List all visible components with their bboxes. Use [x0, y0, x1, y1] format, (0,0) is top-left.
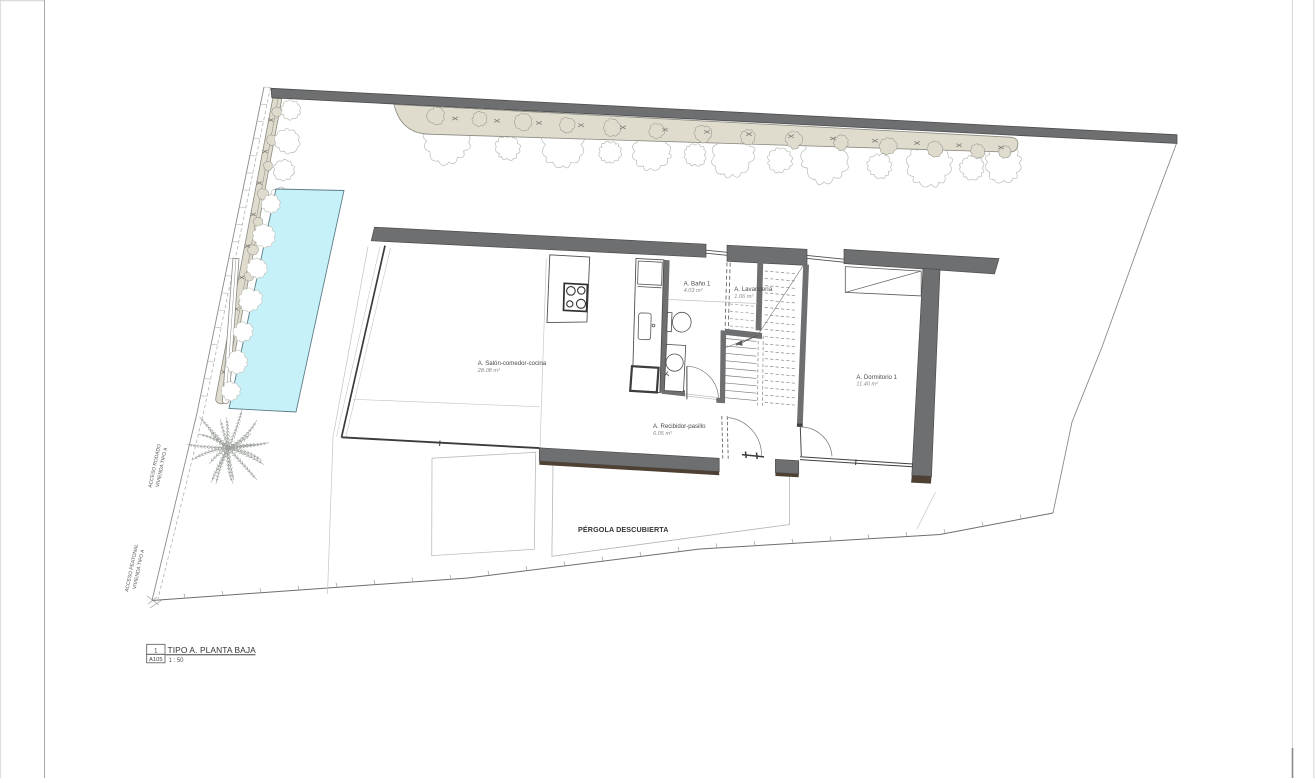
svg-text:6.05 m²: 6.05 m² [653, 431, 673, 437]
svg-text:11.40 m²: 11.40 m² [856, 382, 879, 388]
svg-text:TIPO A. PLANTA BAJA: TIPO A. PLANTA BAJA [168, 645, 257, 655]
svg-text:4.03 m²: 4.03 m² [684, 288, 704, 294]
svg-text:A. Salón-comedor-cocina: A. Salón-comedor-cocina [478, 360, 547, 367]
svg-text:PÉRGOLA DESCUBIERTA: PÉRGOLA DESCUBIERTA [578, 525, 669, 534]
svg-text:A. Dormitorio 1: A. Dormitorio 1 [856, 374, 897, 381]
svg-text:A. Baño 1: A. Baño 1 [684, 280, 711, 287]
svg-text:28.08 m²: 28.08 m² [477, 368, 501, 374]
svg-text:1.06 m²: 1.06 m² [734, 294, 754, 300]
svg-text:1 : 50: 1 : 50 [169, 658, 185, 664]
svg-text:A105: A105 [149, 657, 163, 663]
svg-text:A. Recibidor-pasillo: A. Recibidor-pasillo [653, 423, 706, 430]
svg-text:A. Lavandería: A. Lavandería [734, 286, 773, 293]
